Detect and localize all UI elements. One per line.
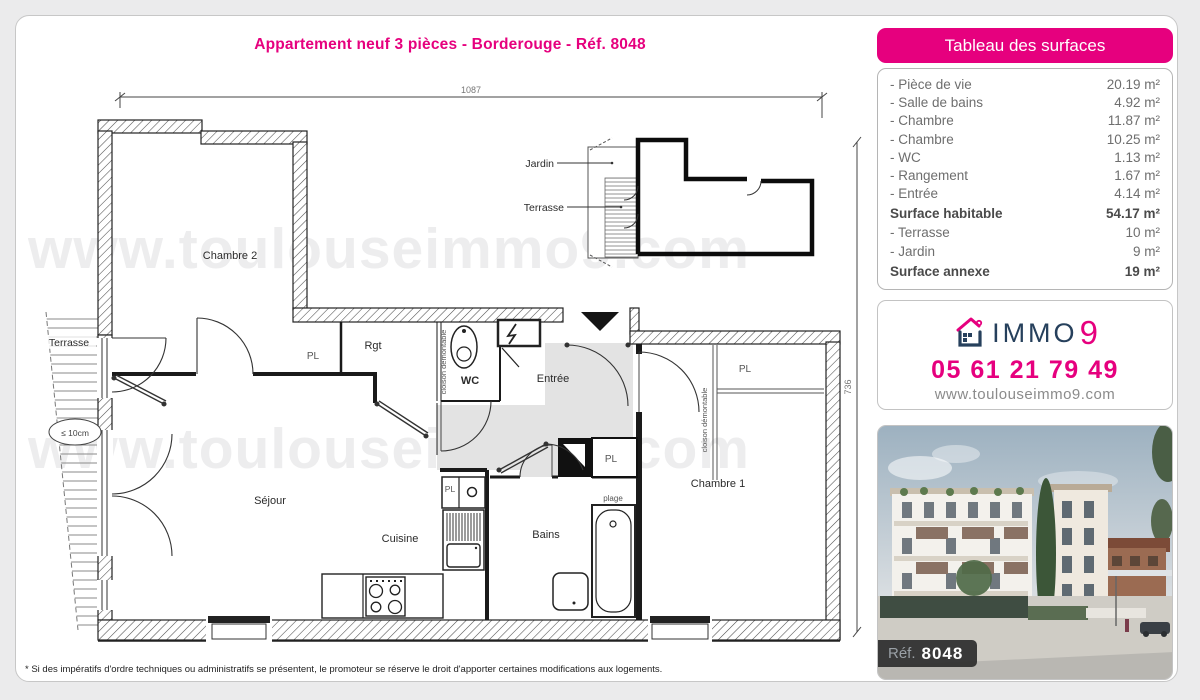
row-label: - Chambre (890, 112, 954, 130)
label-pl: PL (739, 364, 752, 375)
siteplan-terrasse-label: Terrasse (524, 202, 564, 214)
terrace-hatch (46, 312, 98, 630)
row-value: 9 m² (1133, 243, 1160, 261)
label-chambre1: Chambre 1 (691, 478, 745, 490)
label-sejour: Séjour (254, 495, 286, 507)
row-label: - Rangement (890, 167, 968, 185)
row-label: - Pièce de vie (890, 76, 972, 94)
label-terrasse: Terrasse (49, 337, 89, 349)
row-label: - Chambre (890, 131, 954, 149)
label-depth: ≤ 10cm (61, 428, 89, 438)
closet-chambre1 (713, 345, 824, 480)
building-photo: Réf. 8048 (877, 425, 1173, 680)
row-value: 4.14 m² (1114, 185, 1160, 203)
table-row: - Entrée4.14 m² (890, 185, 1160, 203)
table-row-total: Surface annexe19 m² (890, 261, 1160, 282)
row-value: 19 m² (1125, 261, 1160, 282)
dim-height: 736 (843, 379, 853, 394)
agency-phone: 05 61 21 79 49 (878, 356, 1172, 385)
dim-width: 1087 (461, 85, 481, 95)
row-value: 1.13 m² (1114, 149, 1160, 167)
row-label: - Salle de bains (890, 94, 983, 112)
row-value: 11.87 m² (1108, 112, 1160, 130)
table-row: - Chambre10.25 m² (890, 131, 1160, 149)
reference-badge: Réf. 8048 (878, 640, 977, 667)
brand-digit: 9 (1080, 314, 1098, 352)
floor-plan: Chambre 2 Séjour Cuisine Bains WC Rgt En… (0, 0, 870, 660)
footnote: * Si des impératifs d'ordre techniques o… (25, 664, 662, 675)
label-cuisine: Cuisine (382, 533, 419, 545)
house-icon (952, 315, 988, 351)
label-rgt: Rgt (364, 340, 381, 352)
row-label: Surface annexe (890, 261, 990, 282)
agency-website: www.toulouseimmo9.com (878, 386, 1172, 403)
row-label: - WC (890, 149, 921, 167)
surfaces-table-header: Tableau des surfaces (877, 28, 1173, 63)
surfaces-table: - Pièce de vie20.19 m² - Salle de bains4… (877, 68, 1173, 290)
site-plan: Jardin Terrasse (524, 138, 812, 267)
label-entree: Entrée (537, 373, 569, 385)
table-row: - Salle de bains4.92 m² (890, 94, 1160, 112)
label-pl: PL (605, 454, 618, 465)
table-row: - Chambre11.87 m² (890, 112, 1160, 130)
table-row: - Rangement1.67 m² (890, 167, 1160, 185)
row-value: 10 m² (1125, 224, 1160, 242)
row-value: 1.67 m² (1114, 167, 1160, 185)
row-value: 4.92 m² (1114, 94, 1160, 112)
row-label: - Terrasse (890, 224, 950, 242)
label-pl: PL (445, 484, 456, 494)
row-label: - Jardin (890, 243, 935, 261)
label-cloison: cloison démontable (439, 330, 448, 395)
row-label: - Entrée (890, 185, 938, 203)
label-plage: plage (603, 494, 623, 503)
row-label: Surface habitable (890, 203, 1003, 224)
label-cloison: cloison démontable (700, 388, 709, 453)
brand-text: IMMO (992, 318, 1078, 349)
entrance-arrow-icon (581, 312, 619, 331)
table-row: - Pièce de vie20.19 m² (890, 76, 1160, 94)
agency-logo: IMMO9 (878, 314, 1172, 352)
siteplan-jardin-label: Jardin (525, 158, 554, 170)
table-row-total: Surface habitable54.17 m² (890, 203, 1160, 224)
label-pl: PL (307, 351, 320, 362)
label-bains: Bains (532, 529, 560, 541)
table-row: - Terrasse10 m² (890, 224, 1160, 242)
label-wc: WC (461, 375, 479, 387)
row-value: 20.19 m² (1107, 76, 1160, 94)
ref-number: 8048 (922, 644, 964, 664)
ref-label: Réf. (888, 645, 916, 662)
label-chambre2: Chambre 2 (203, 250, 257, 262)
row-value: 10.25 m² (1107, 131, 1160, 149)
table-row: - Jardin9 m² (890, 243, 1160, 261)
row-value: 54.17 m² (1106, 203, 1160, 224)
agency-card: IMMO9 05 61 21 79 49 www.toulouseimmo9.c… (877, 300, 1173, 410)
table-row: - WC1.13 m² (890, 149, 1160, 167)
